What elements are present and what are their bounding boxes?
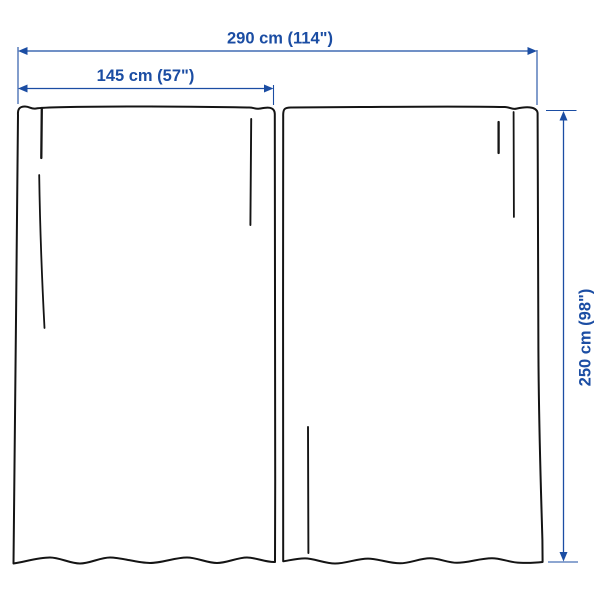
- arrow-right-icon: [264, 85, 274, 93]
- diagram-canvas: 290 cm (114") 145 cm (57") 250 cm (98"): [0, 0, 600, 600]
- curtain-panel-right: [283, 107, 543, 564]
- dimension-panel-width: 145 cm (57"): [18, 67, 274, 105]
- panel-height-label: 250 cm (98"): [577, 289, 595, 387]
- fold-crease-line: [39, 175, 44, 328]
- dimension-panel-height: 250 cm (98"): [546, 111, 595, 563]
- arrow-right-icon: [528, 47, 538, 55]
- arrow-down-icon: [560, 552, 568, 562]
- arrow-up-icon: [560, 111, 568, 121]
- fold-crease-line: [41, 108, 42, 158]
- arrow-left-icon: [18, 47, 28, 55]
- curtain-panel-right-outline: [283, 107, 543, 564]
- curtain-panel-left: [14, 107, 276, 564]
- panel-width-label: 145 cm (57"): [97, 67, 195, 85]
- arrow-left-icon: [18, 85, 28, 93]
- curtain-panel-left-outline: [14, 107, 276, 564]
- curtain-panels-group: [14, 107, 543, 564]
- dimension-diagram: 290 cm (114") 145 cm (57") 250 cm (98"): [0, 0, 600, 600]
- total-width-label: 290 cm (114"): [227, 30, 333, 48]
- fold-crease-line: [250, 119, 251, 225]
